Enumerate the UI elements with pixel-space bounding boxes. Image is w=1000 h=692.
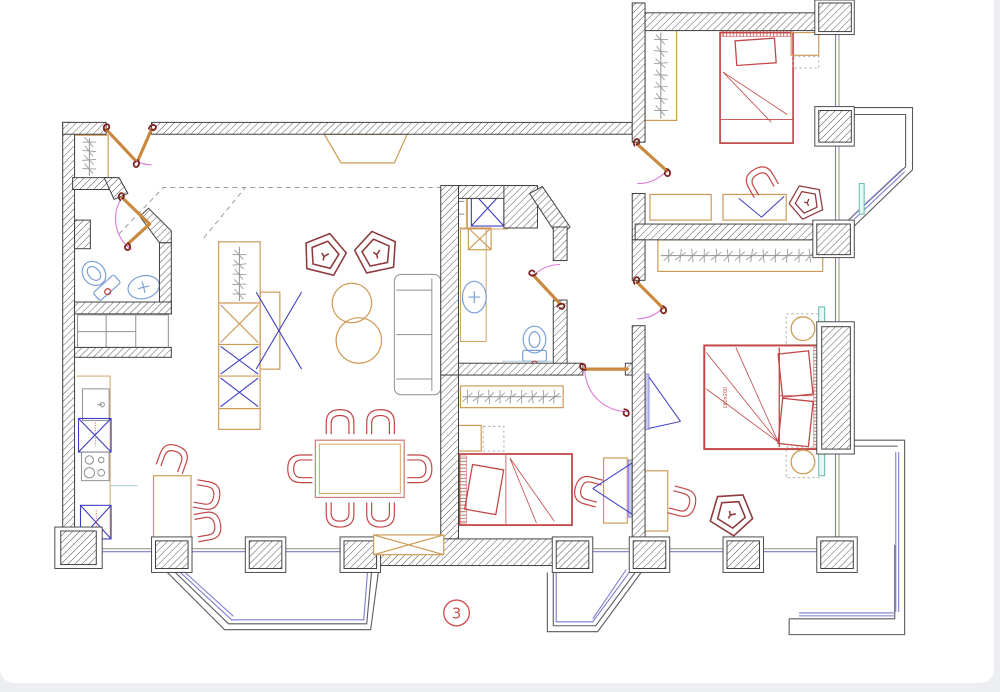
double-bed [720,31,793,144]
room-bathroom-1 [75,255,168,348]
nightstand-with-lamp [786,447,820,478]
double-bed: 160x200 [704,345,822,449]
cabinet-ghost [483,426,504,451]
armchair [784,179,827,222]
svg-text:3: 3 [452,605,461,622]
entry-closet [73,135,109,178]
dining-chair [326,410,354,435]
kitchen-sink [82,389,109,421]
wardrobe-hanger-rail [658,240,823,272]
bedside-cabinet [459,425,482,451]
armchair [300,229,350,277]
kids-room-door [580,364,630,417]
bedroom-top-right-door [633,138,672,183]
console-table [324,134,407,163]
kitchen-chair [156,441,190,474]
bay-window-right-top [847,108,912,227]
desk-chair [668,486,699,519]
desk [572,458,627,523]
window-sill-lines [96,35,839,552]
bay-window-bottom-center [547,569,641,631]
desk [640,471,698,531]
kitchen-chair [194,510,223,542]
room-entry-hall [73,134,408,178]
storage-shelves [78,315,169,348]
pouf-table [336,318,381,363]
chair-ghost [793,56,819,68]
bathroom2-door [528,265,565,311]
tv-panel [593,460,632,517]
sheet-number-marker: 3 [444,600,470,626]
tall-wardrobe-column [219,242,302,430]
room-master-bedroom: 160x200 [640,240,825,540]
floorplan-drawing: 160x200 [0,0,994,683]
dining-chair [407,455,432,483]
bed-size-label: 160x200 [723,387,729,409]
single-bed [459,454,572,525]
dining-set [288,410,432,527]
toilet-symbol [502,326,552,367]
dining-chair [367,410,395,435]
wardrobe-hanger-rail [460,386,563,408]
bay-window-bottom-left [165,568,378,630]
nightstand-with-lamp [786,314,820,345]
master-bedroom-door [633,277,668,319]
floorplan-page: 160x200 [0,0,994,683]
entry-double-door [103,123,157,167]
armchair [704,484,760,539]
exterior-and-interior-walls [55,0,857,572]
kitchen-chair [193,480,222,512]
desk-chair [742,163,778,198]
room-kids-bedroom [459,386,633,525]
room-kitchen [77,376,223,542]
small-cabinet [468,228,491,250]
kitchen-table [154,441,223,542]
room-living-dining [219,227,441,527]
toilet-symbol [75,255,121,302]
appliance-box-1 [79,418,112,452]
dining-chair [367,502,395,527]
doors [103,123,672,416]
stove-symbol [81,452,109,481]
armchair [352,227,401,274]
tv-panel [645,374,681,429]
tv-cabinet-niche [374,535,444,555]
wardrobe-hanger-rail [645,30,677,121]
desk-chair [572,474,603,507]
dining-chair [288,455,313,483]
pouf-table [332,283,371,322]
radiator [859,184,864,215]
desk [791,33,819,56]
sink-symbol [126,272,162,302]
sink-symbol [462,281,486,313]
sofa [394,274,440,394]
desk-with-stand [723,163,786,221]
dining-chair [326,502,354,527]
desk [650,194,711,220]
